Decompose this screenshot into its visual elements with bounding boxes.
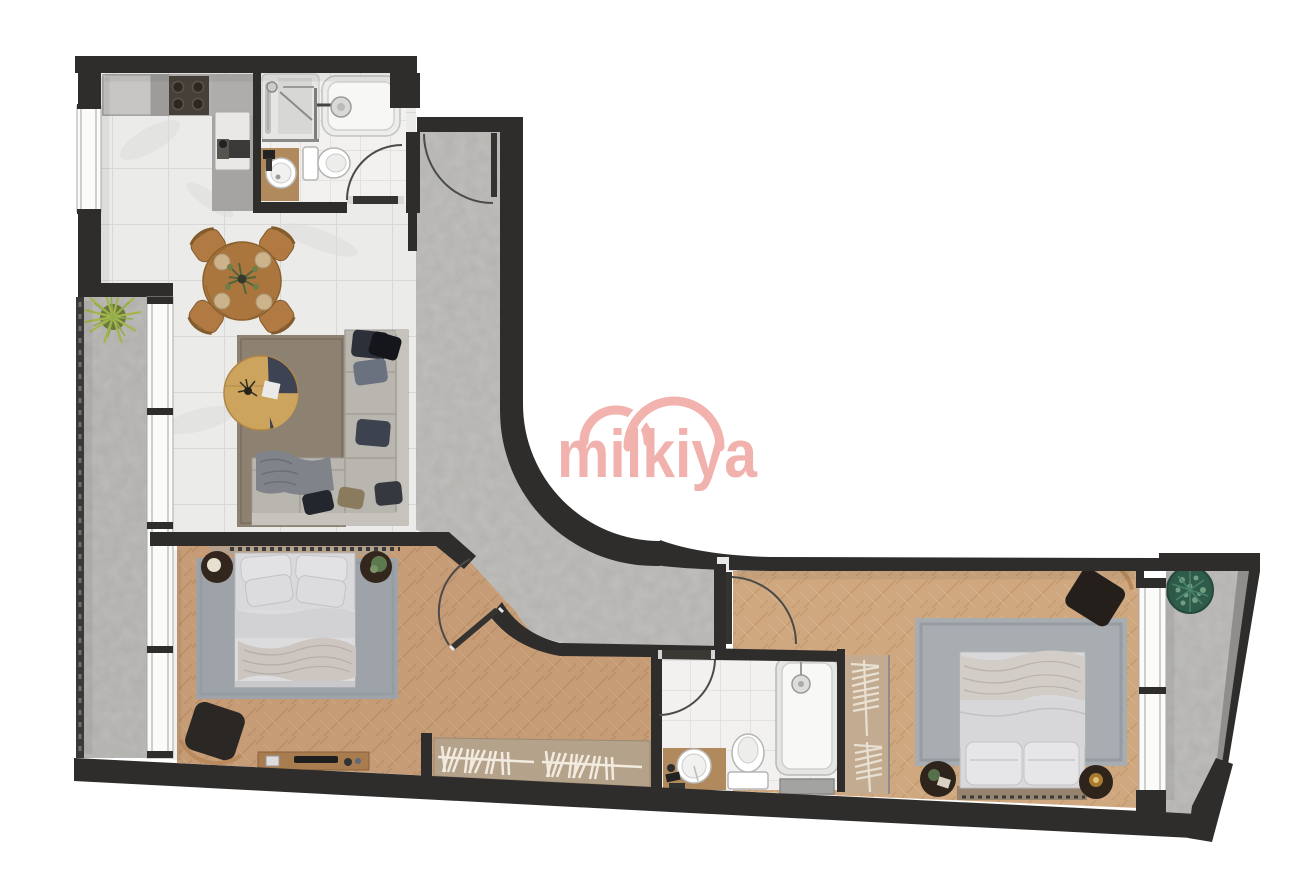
svg-text:milkiya: milkiya	[557, 416, 758, 492]
